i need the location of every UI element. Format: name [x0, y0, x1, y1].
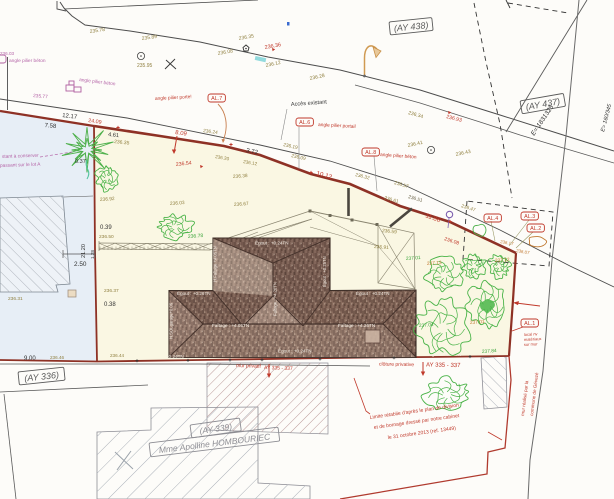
svg-text:clôture privative: clôture privative [379, 362, 414, 369]
svg-text:Égout : +0.24TN: Égout : +0.24TN [278, 348, 312, 354]
svg-text:237.12: 237.12 [495, 257, 510, 264]
svg-text:AL.4: AL.4 [487, 216, 498, 222]
svg-text:Faîtage : +4.26TN: Faîtage : +4.26TN [273, 282, 278, 316]
svg-text:7.58: 7.58 [44, 123, 57, 130]
svg-text:236.92: 236.92 [100, 196, 115, 203]
svg-text:H.Faîtage +4.05TN: H.Faîtage +4.05TN [213, 246, 218, 282]
svg-text:Égout : +0.26TN: Égout : +0.26TN [177, 290, 211, 296]
svg-text:236.03: 236.03 [170, 200, 185, 207]
svg-text:4.61: 4.61 [108, 132, 119, 139]
svg-text:236.91: 236.91 [374, 244, 389, 251]
svg-text:236.31: 236.31 [8, 296, 23, 302]
svg-text:237.13: 237.13 [427, 260, 442, 267]
svg-text:AL.1: AL.1 [524, 321, 535, 327]
svg-text:236.50: 236.50 [99, 234, 114, 240]
svg-text:AY 335 - 337: AY 335 - 337 [426, 363, 461, 370]
svg-text:Égout : +0.24TN: Égout : +0.24TN [356, 290, 390, 296]
svg-text:0.39: 0.39 [100, 225, 112, 231]
svg-text:237.04: 237.04 [419, 322, 434, 329]
svg-text:236.38: 236.38 [233, 173, 248, 180]
svg-text:AL.8: AL.8 [365, 150, 376, 156]
svg-text:Faîtage : +4.05TN: Faîtage : +4.05TN [212, 323, 249, 328]
svg-text:236.67: 236.67 [234, 201, 249, 208]
svg-text:AL.6: AL.6 [299, 120, 310, 126]
svg-text:H.SOLgarage+0.05: H.SOLgarage+0.05 [169, 302, 174, 339]
svg-text:angle pilier béton: angle pilier béton [9, 58, 46, 64]
svg-text:237.84: 237.84 [482, 348, 497, 355]
svg-text:236.37: 236.37 [104, 288, 119, 294]
svg-text:1.28: 1.28 [90, 250, 95, 259]
svg-text:Faîtage : +4.26TN: Faîtage : +4.26TN [338, 323, 375, 328]
svg-text:0.38: 0.38 [104, 302, 116, 308]
svg-text:21.20: 21.20 [81, 244, 87, 258]
svg-text:236.46: 236.46 [50, 355, 64, 360]
svg-text:0.37: 0.37 [75, 159, 86, 165]
svg-text:+0.24TN: +0.24TN [166, 354, 184, 359]
svg-text:AL.7: AL.7 [211, 96, 222, 102]
svg-text:Égout : +0.25TN: Égout : +0.25TN [322, 256, 327, 287]
svg-text:AY 335 - 337: AY 335 - 337 [264, 365, 293, 372]
svg-text:AL.2: AL.2 [530, 226, 541, 232]
svg-text:Égout : +0.24TN: Égout : +0.24TN [255, 240, 289, 246]
svg-text:sur mur: sur mur [524, 341, 538, 347]
svg-text:237.01: 237.01 [406, 255, 421, 262]
svg-text:236.03: 236.03 [0, 51, 14, 56]
svg-text:mur privatif: mur privatif [236, 363, 262, 370]
svg-text:237.01: 237.01 [470, 319, 485, 326]
svg-text:2.50: 2.50 [74, 261, 87, 268]
svg-text:236.78: 236.78 [188, 233, 204, 240]
svg-text:9.00: 9.00 [24, 356, 36, 362]
svg-text:236.44: 236.44 [110, 353, 124, 358]
svg-text:235.95: 235.95 [137, 63, 153, 69]
svg-text:AL.3: AL.3 [524, 214, 535, 220]
